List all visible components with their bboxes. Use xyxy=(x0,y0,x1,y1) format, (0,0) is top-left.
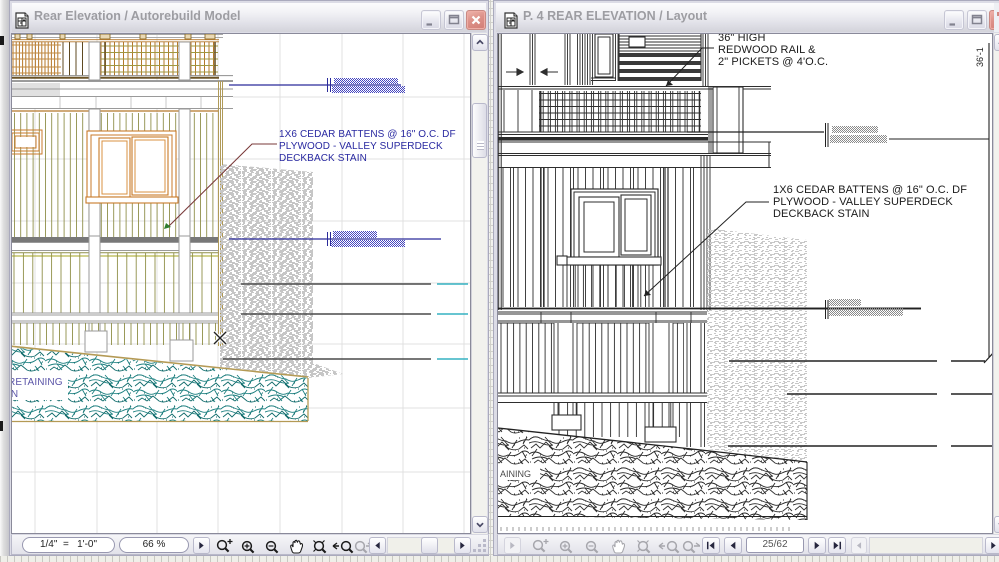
svg-text:RETAINING: RETAINING xyxy=(12,377,63,388)
svg-text:36" HIGH: 36" HIGH xyxy=(718,34,766,44)
svg-text:36'-1: 36'-1 xyxy=(975,47,985,67)
svg-text:1X6 CEDAR BATTENS @ 16" O.C. D: 1X6 CEDAR BATTENS @ 16" O.C. DF xyxy=(279,129,456,140)
svg-text:PLYWOOD - VALLEY SUPERDECK: PLYWOOD - VALLEY SUPERDECK xyxy=(773,196,953,208)
svg-text:AINING: AINING xyxy=(500,469,531,479)
svg-text:PLYWOOD - VALLEY SUPERDECK: PLYWOOD - VALLEY SUPERDECK xyxy=(279,141,443,152)
svg-text:IN: IN xyxy=(12,389,18,400)
svg-text:2" PICKETS @ 4'O.C.: 2" PICKETS @ 4'O.C. xyxy=(718,56,828,68)
svg-text:DECKBACK STAIN: DECKBACK STAIN xyxy=(773,208,870,220)
svg-text:DECKBACK STAIN: DECKBACK STAIN xyxy=(279,153,367,164)
svg-text:REDWOOD RAIL &: REDWOOD RAIL & xyxy=(718,44,816,56)
svg-text:1X6 CEDAR BATTENS @ 16" O.C. D: 1X6 CEDAR BATTENS @ 16" O.C. DF xyxy=(773,184,967,196)
